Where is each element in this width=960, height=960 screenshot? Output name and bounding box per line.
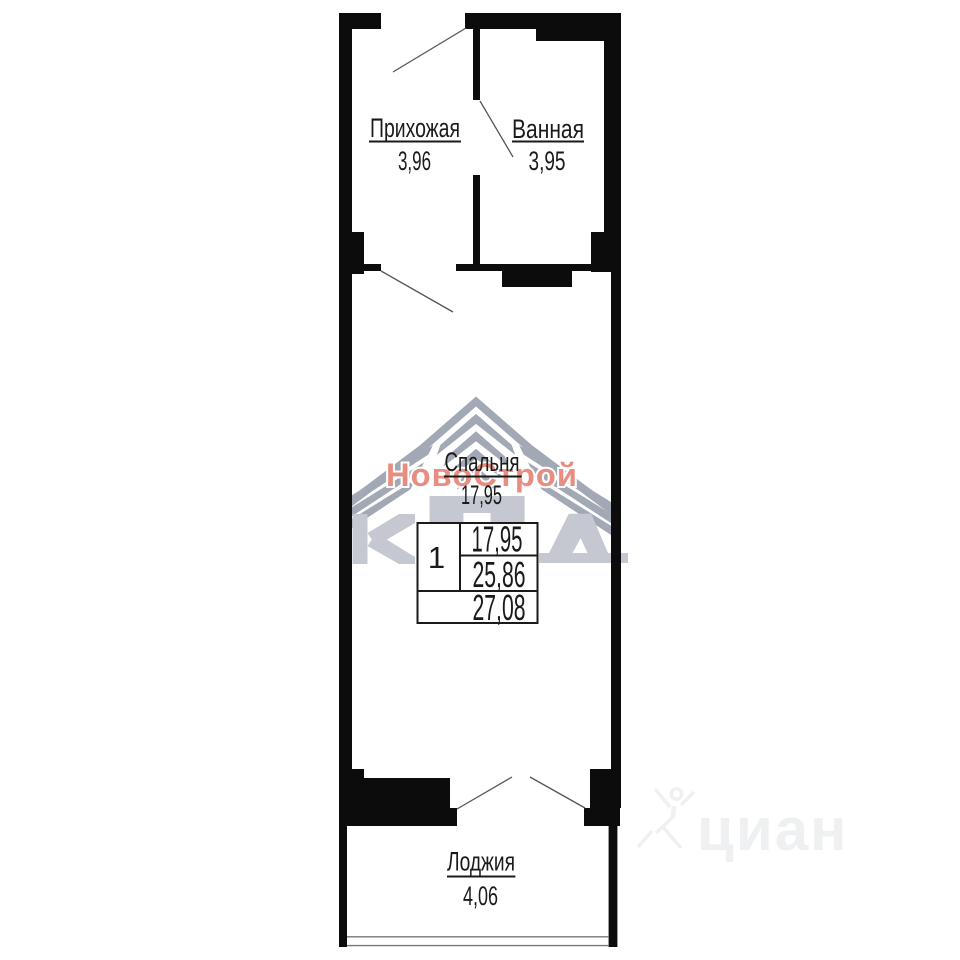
svg-text:Спальня: Спальня (445, 447, 520, 477)
svg-text:Ванная: Ванная (512, 114, 584, 144)
svg-text:4,06: 4,06 (463, 881, 498, 911)
svg-text:17,95: 17,95 (461, 480, 502, 510)
svg-text:Лоджия: Лоджия (447, 847, 515, 877)
svg-text:1: 1 (428, 540, 445, 575)
svg-text:Прихожая: Прихожая (370, 113, 460, 143)
svg-text:3,96: 3,96 (398, 146, 431, 176)
svg-text:циан: циан (697, 796, 848, 863)
svg-text:27,08: 27,08 (473, 587, 526, 628)
svg-text:3,95: 3,95 (529, 146, 566, 176)
